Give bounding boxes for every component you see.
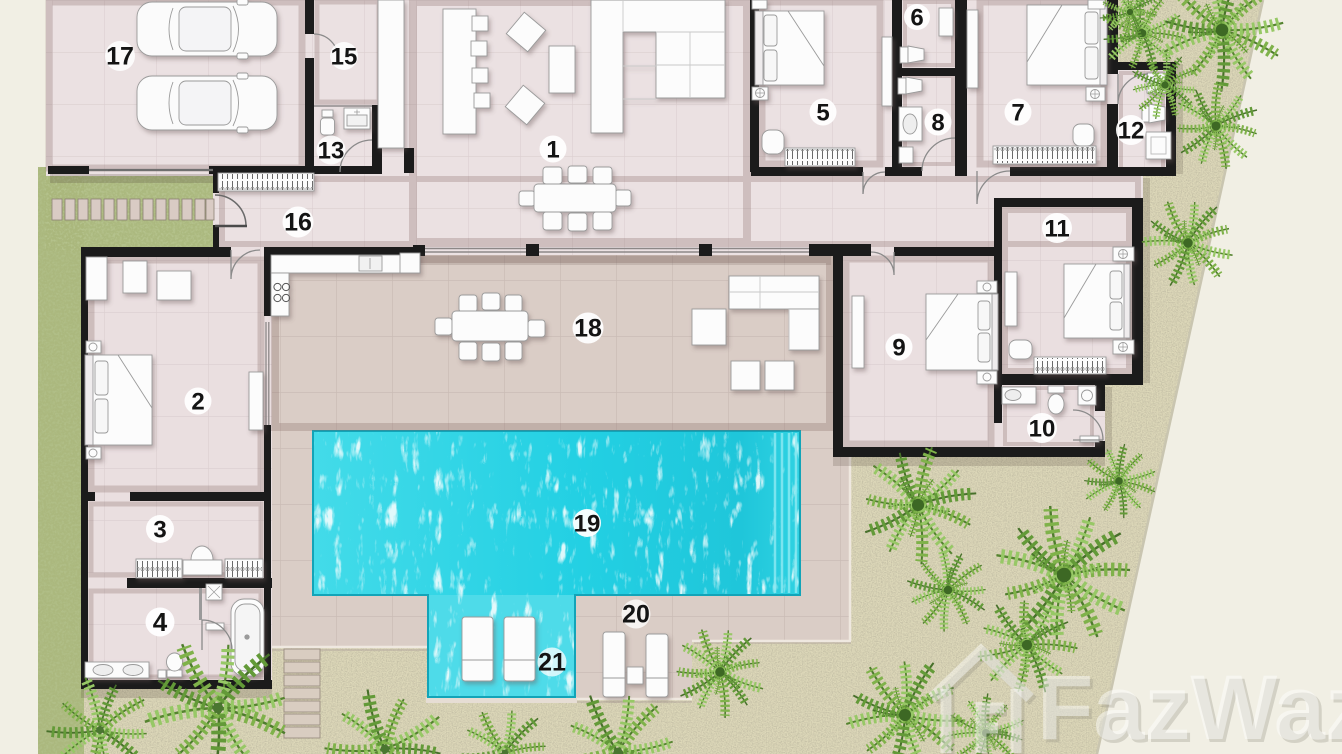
svg-text:7: 7 <box>1011 100 1024 127</box>
svg-text:10: 10 <box>1029 416 1056 443</box>
svg-text:8: 8 <box>931 110 944 137</box>
svg-text:16: 16 <box>284 209 312 237</box>
svg-text:20: 20 <box>622 601 650 629</box>
svg-text:3: 3 <box>153 517 166 544</box>
svg-text:2: 2 <box>191 389 204 416</box>
svg-text:17: 17 <box>106 43 134 71</box>
svg-text:12: 12 <box>1118 118 1145 145</box>
svg-text:1: 1 <box>546 137 559 164</box>
svg-text:9: 9 <box>892 335 905 362</box>
svg-text:4: 4 <box>153 607 168 637</box>
svg-text:13: 13 <box>318 138 345 165</box>
svg-text:6: 6 <box>910 5 923 32</box>
svg-text:19: 19 <box>574 511 601 538</box>
svg-text:5: 5 <box>816 100 829 127</box>
svg-text:11: 11 <box>1044 216 1069 243</box>
svg-text:21: 21 <box>538 649 566 677</box>
svg-text:15: 15 <box>331 44 358 71</box>
svg-text:18: 18 <box>574 315 602 343</box>
svg-text:FazWaz: FazWaz <box>1037 657 1342 754</box>
